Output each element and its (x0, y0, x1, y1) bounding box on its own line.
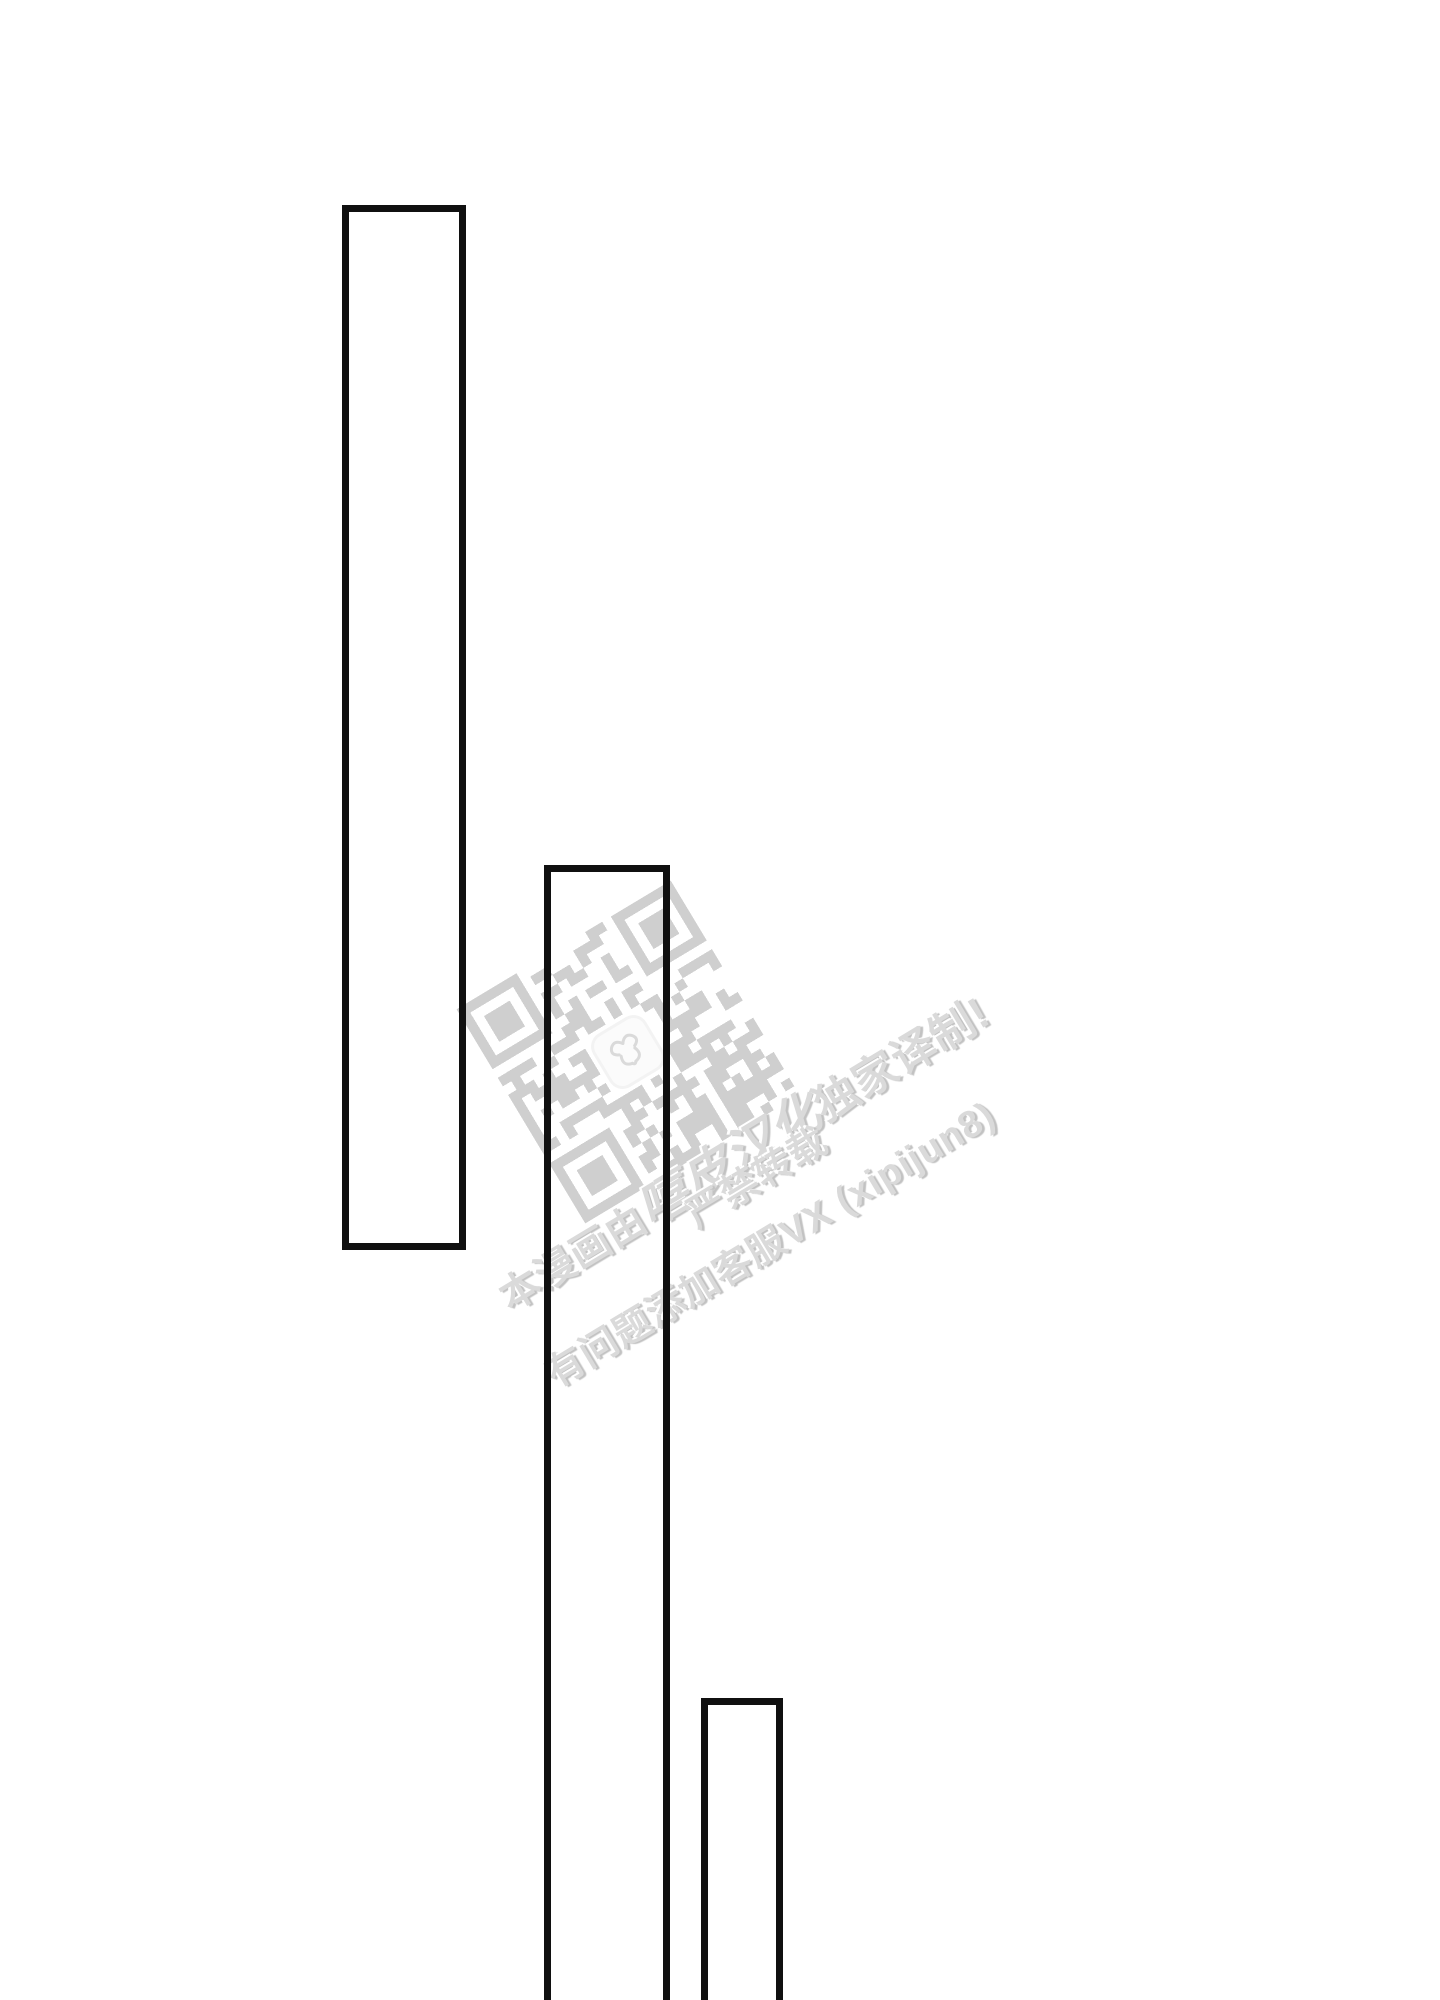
panel-outline-bottom (701, 1698, 783, 2000)
watermark-no-repost-line: 严禁转载 (674, 1111, 836, 1238)
comic-page: 本漫画由嘻皮汉化独家译制! 严禁转载 有问题添加客服VX (xipijun8) (0, 0, 1440, 2000)
panel-outline-middle (544, 865, 670, 2000)
watermark-credit-suffix: 独家译制! (805, 988, 998, 1131)
panel-outline-left (342, 205, 466, 1250)
